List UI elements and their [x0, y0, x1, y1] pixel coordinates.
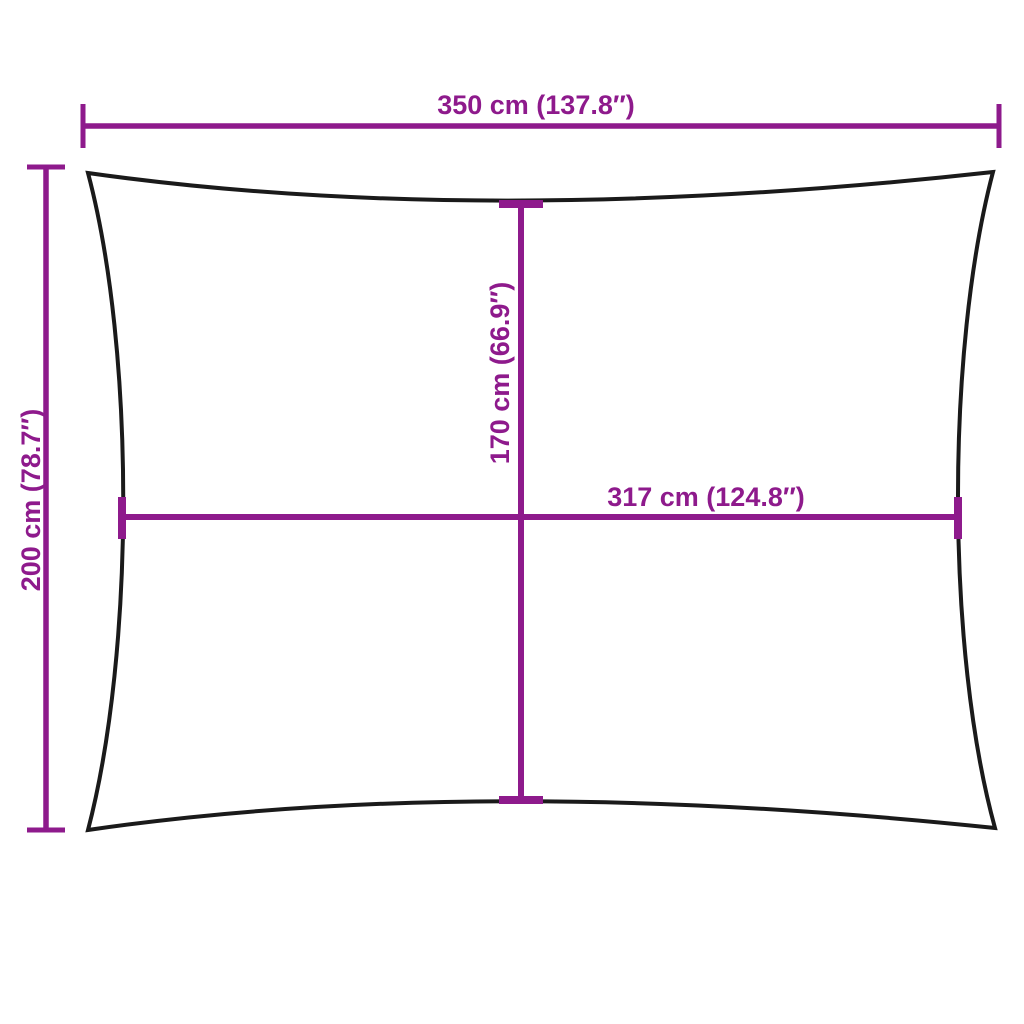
left-dimension: 200 cm (78.7″): [16, 167, 65, 830]
inner-horizontal-dimension-label: 317 cm (124.8″): [607, 482, 805, 512]
top-dimension: 350 cm (137.8″): [83, 90, 999, 148]
inner-vertical-dimension: 170 cm (66.9″): [485, 202, 543, 801]
shade-sail-shape: [88, 172, 995, 830]
inner-horizontal-dimension: 317 cm (124.8″): [122, 482, 958, 539]
sail-outline: [88, 172, 995, 830]
top-dimension-label: 350 cm (137.8″): [437, 90, 635, 120]
inner-vertical-dimension-label: 170 cm (66.9″): [485, 282, 515, 465]
left-dimension-label: 200 cm (78.7″): [16, 409, 46, 592]
product-dimension-diagram: 350 cm (137.8″) 200 cm (78.7″) 170 cm (6…: [0, 0, 1024, 1024]
